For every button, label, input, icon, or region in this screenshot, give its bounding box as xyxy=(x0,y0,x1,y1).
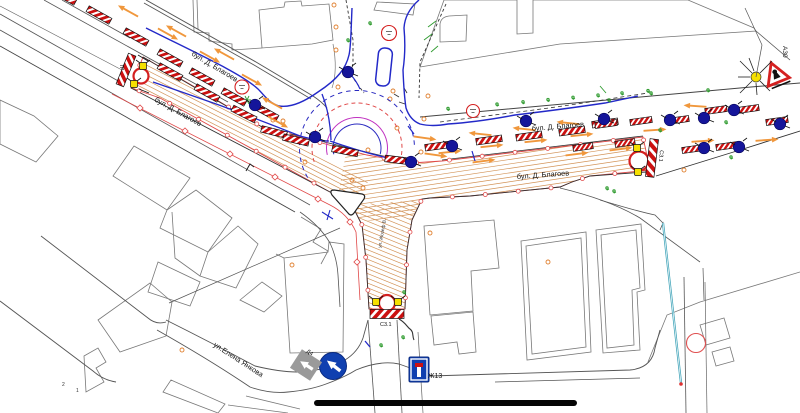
svg-text:1: 1 xyxy=(76,388,79,394)
svg-text:А30: А30 xyxy=(781,46,788,58)
svg-text:2: 2 xyxy=(62,382,65,388)
svg-text:ТР: ТР xyxy=(118,64,124,71)
svg-text:С3.1: С3.1 xyxy=(380,322,392,328)
svg-text:С3.1: С3.1 xyxy=(657,150,664,162)
svg-text:Ж13: Ж13 xyxy=(428,373,442,380)
